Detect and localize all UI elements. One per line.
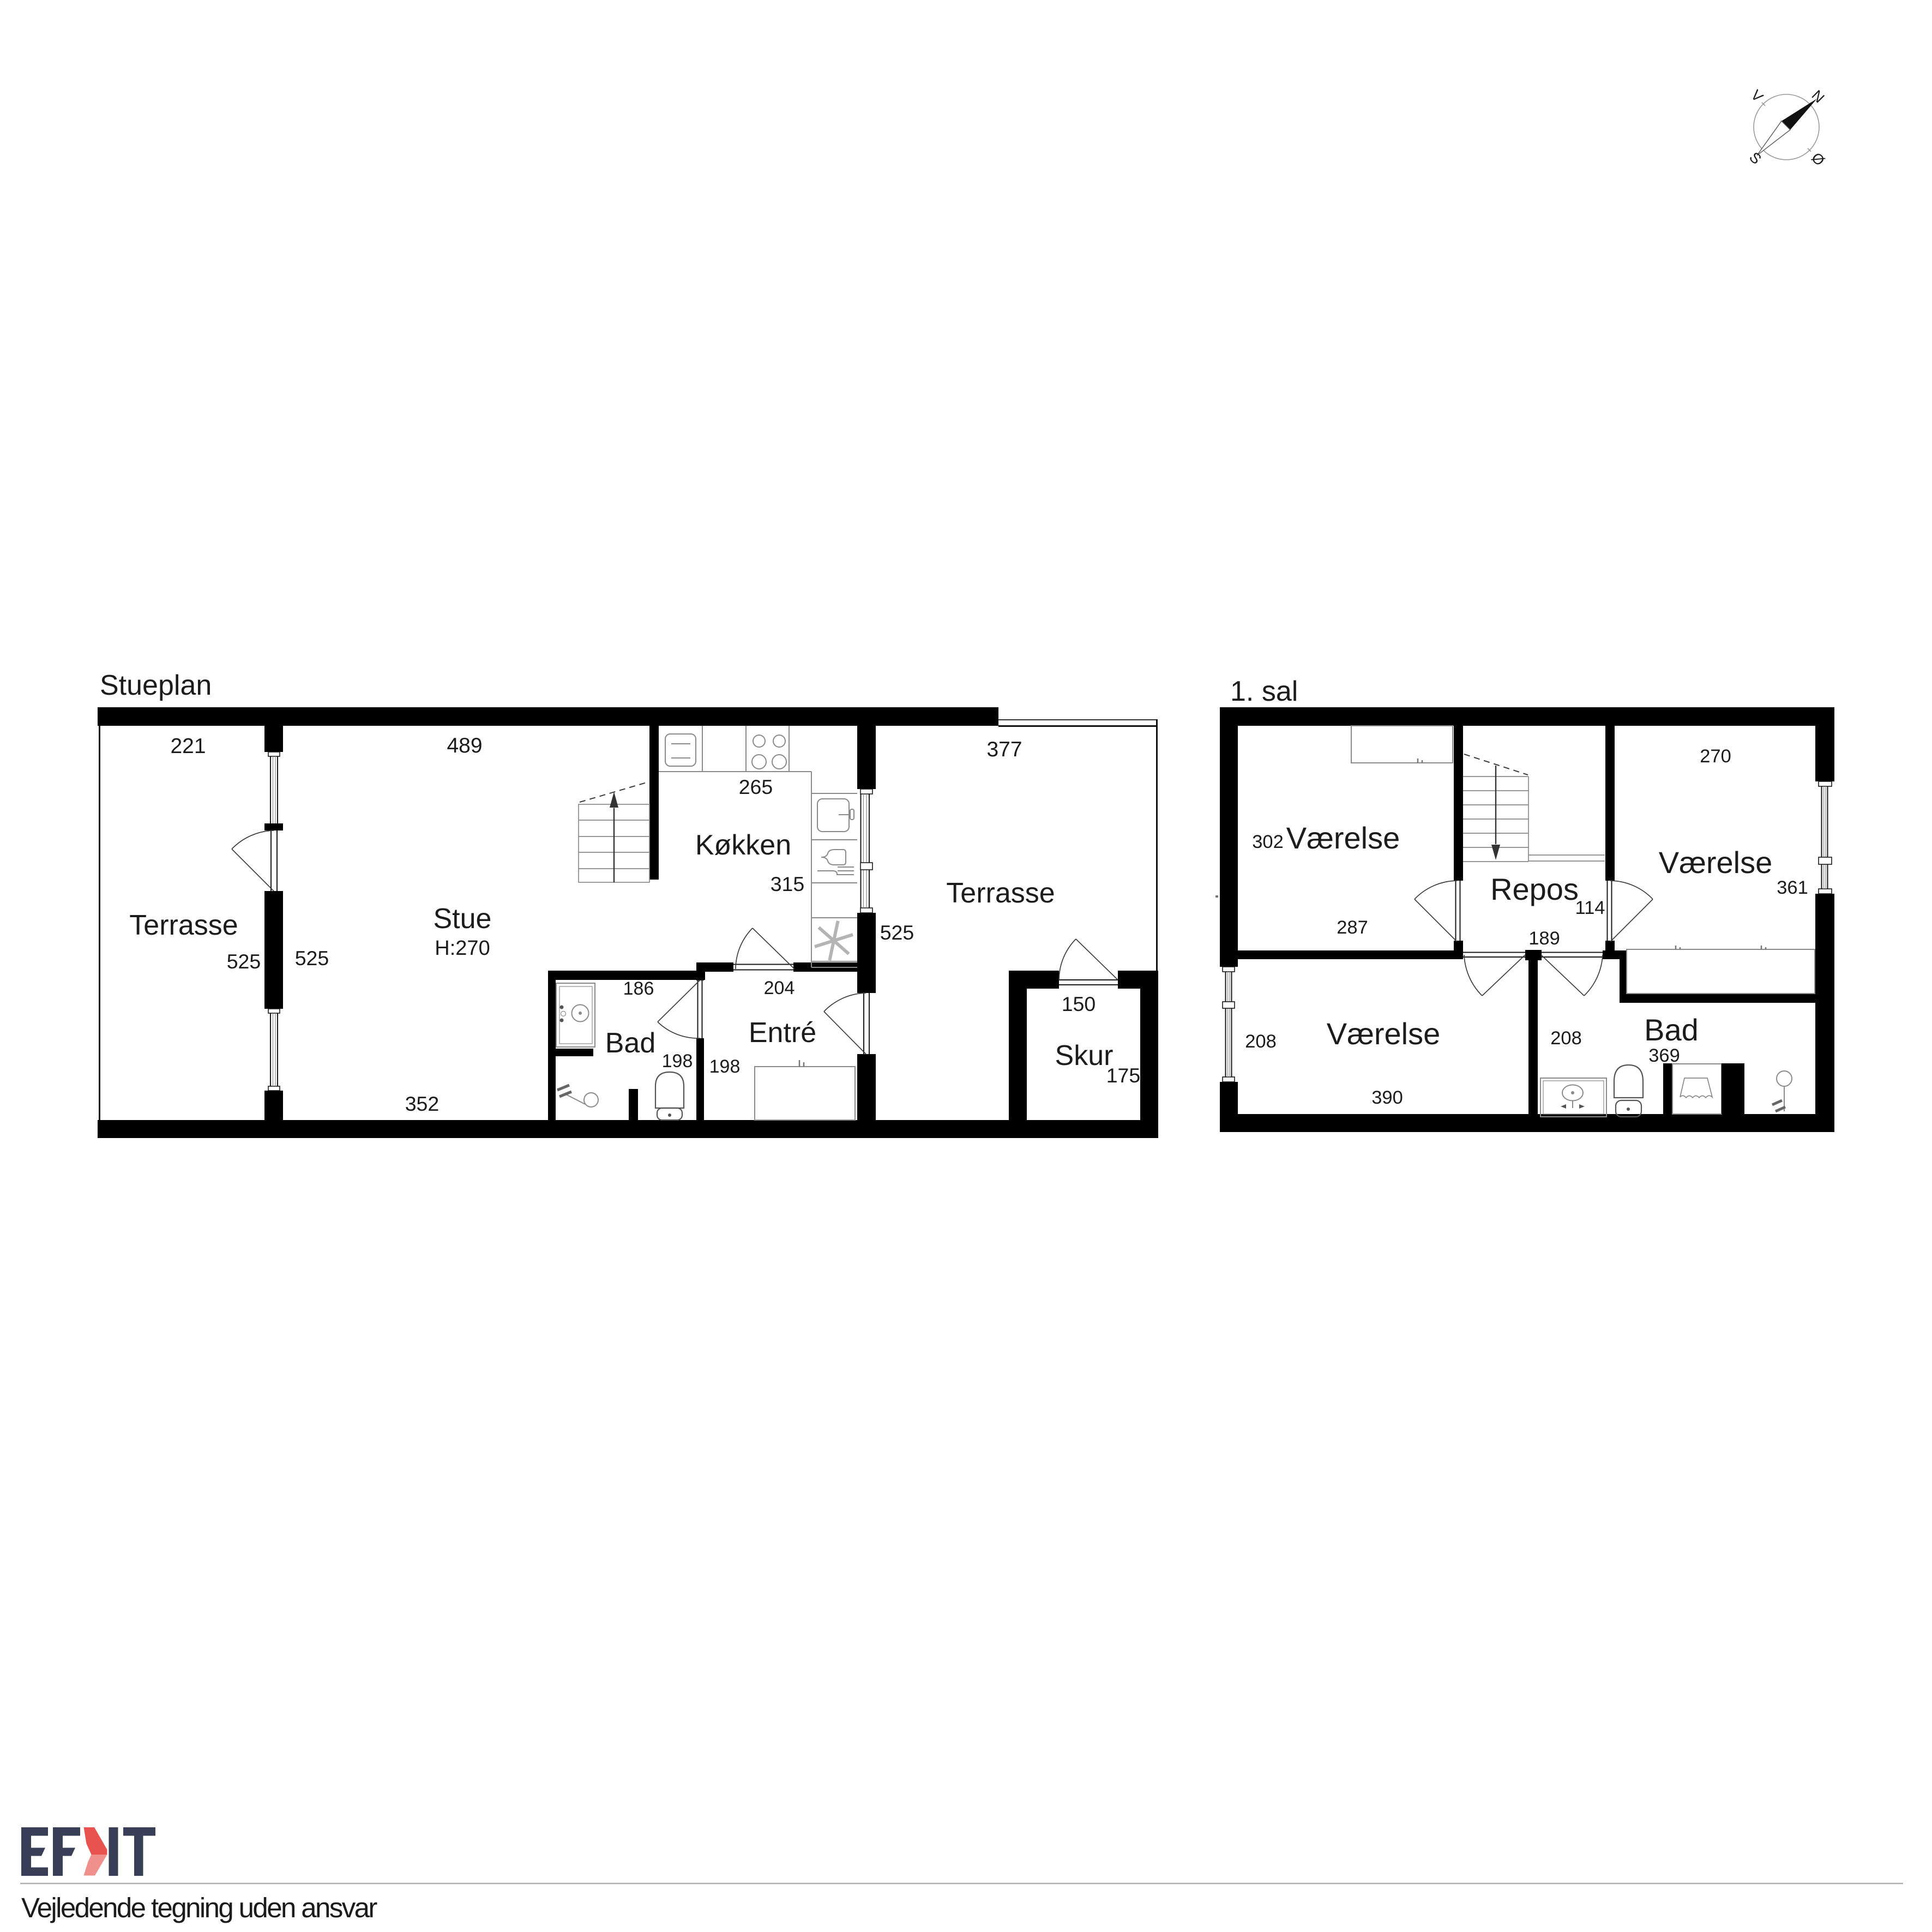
svg-text:Køkken: Køkken (695, 829, 791, 861)
svg-text:1. sal: 1. sal (1230, 676, 1298, 707)
svg-text:Terrasse: Terrasse (946, 877, 1055, 909)
svg-text:Skur: Skur (1055, 1040, 1114, 1072)
svg-text:Bad: Bad (1644, 1013, 1699, 1047)
svg-text:302: 302 (1252, 832, 1284, 852)
svg-text:208: 208 (1550, 1028, 1582, 1049)
svg-text:525: 525 (880, 921, 914, 944)
svg-text:525: 525 (227, 950, 261, 973)
svg-text:270: 270 (1700, 746, 1731, 767)
svg-text:489: 489 (447, 734, 482, 757)
svg-text:Entré: Entré (749, 1017, 816, 1049)
svg-text:208: 208 (1245, 1031, 1277, 1052)
svg-text:Terrasse: Terrasse (129, 910, 238, 941)
svg-text:Repos: Repos (1490, 872, 1579, 906)
svg-text:114: 114 (1575, 898, 1605, 918)
svg-text:189: 189 (1528, 928, 1560, 949)
svg-text:175: 175 (1106, 1064, 1141, 1087)
svg-text:Værelse: Værelse (1659, 845, 1773, 880)
svg-text:361: 361 (1777, 877, 1808, 898)
svg-text:186: 186 (623, 978, 654, 999)
svg-text:150: 150 (1062, 992, 1096, 1015)
svg-text:369: 369 (1648, 1045, 1680, 1066)
svg-text:204: 204 (764, 978, 795, 998)
svg-text:287: 287 (1337, 917, 1368, 938)
svg-text:390: 390 (1371, 1087, 1403, 1108)
svg-text:198: 198 (662, 1051, 693, 1072)
svg-text:Stue: Stue (434, 903, 492, 935)
svg-text:377: 377 (986, 738, 1022, 761)
svg-text:221: 221 (170, 735, 206, 758)
svg-text:H:270: H:270 (435, 937, 490, 960)
svg-text:198: 198 (709, 1056, 741, 1077)
svg-text:Stueplan: Stueplan (100, 670, 212, 701)
svg-text:265: 265 (739, 775, 773, 798)
svg-text:Værelse: Værelse (1286, 821, 1400, 855)
svg-text:525: 525 (295, 947, 329, 970)
svg-text:Værelse: Værelse (1327, 1016, 1441, 1051)
svg-text:352: 352 (405, 1092, 440, 1115)
svg-text:Bad: Bad (605, 1027, 656, 1059)
svg-text:315: 315 (771, 872, 805, 895)
svg-text:Vejledende tegning uden ansvar: Vejledende tegning uden ansvar (21, 1892, 377, 1923)
